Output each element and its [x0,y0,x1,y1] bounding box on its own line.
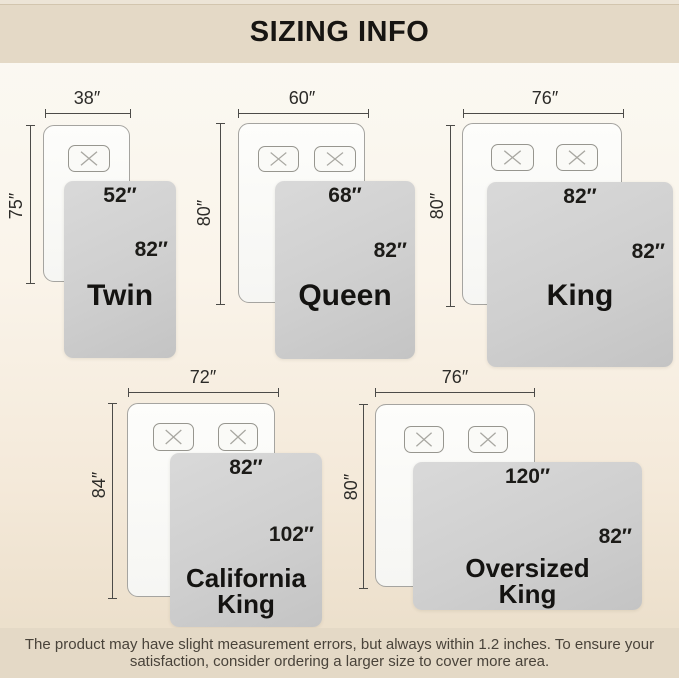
pillow-x-icon [469,427,507,452]
bed-length-dimension-line [216,123,225,305]
pillow-icon [68,145,110,172]
blanket-rect: 120″ 82″ Oversized King [413,462,642,610]
blanket-rect: 82″ 82″ King [487,182,673,367]
bed-width-label: 76″ [515,88,575,108]
pillow-x-icon [219,424,257,450]
pillow-x-icon [492,145,533,170]
sizing-info-infographic: SIZING INFO 38″ 75″ 52″ 82″ Twin 60″ 80″ [0,0,679,678]
size-name-label: California King [171,565,321,617]
pillow-x-icon [557,145,597,170]
pillow-icon [258,146,299,172]
bed-width-label: 76″ [425,367,485,387]
bed-length-dimension-line [446,125,455,307]
pillow-icon [491,144,534,171]
pillow-icon [314,146,356,172]
bed-length-dimension-line [26,125,35,284]
header-band: SIZING INFO [0,0,679,63]
bed-length-label: 80″ [341,457,361,517]
disclaimer-line-1: The product may have slight measurement … [0,636,679,653]
blanket-width-label: 68″ [275,184,415,208]
bed-width-label: 60″ [272,88,332,108]
blanket-width-label: 120″ [413,465,642,489]
pillow-icon [468,426,508,453]
bed-width-dimension-line [463,109,624,118]
size-name-label: Queen [275,279,415,313]
bed-length-label: 75″ [6,176,26,236]
pillow-x-icon [154,424,193,450]
size-name-label: Twin [64,279,176,313]
disclaimer-line-2: satisfaction, consider ordering a larger… [0,653,679,670]
pillow-icon [556,144,598,171]
blanket-rect: 68″ 82″ Queen [275,181,415,359]
bed-width-label: 38″ [57,88,117,108]
blanket-width-label: 52″ [64,184,176,208]
pillow-x-icon [405,427,443,452]
blanket-width-label: 82″ [487,185,673,209]
pillow-icon [218,423,258,451]
blanket-length-label: 82″ [374,239,407,263]
page-title: SIZING INFO [0,16,679,49]
pillow-icon [404,426,444,453]
bed-width-dimension-line [238,109,369,118]
bed-width-dimension-line [45,109,131,118]
bed-length-label: 80″ [427,176,447,236]
pillow-icon [153,423,194,451]
bed-length-label: 84″ [89,455,109,515]
blanket-rect: 52″ 82″ Twin [64,181,176,358]
pillow-x-icon [259,147,298,171]
footer-band: The product may have slight measurement … [0,628,679,678]
pillow-x-icon [315,147,355,171]
bed-length-dimension-line [108,403,117,599]
bed-width-dimension-line [375,388,535,397]
blanket-rect: 82″ 102″ California King [170,453,322,627]
disclaimer-text: The product may have slight measurement … [0,636,679,670]
blanket-length-label: 102″ [269,523,314,547]
blanket-width-label: 82″ [170,456,322,480]
pillow-x-icon [69,146,109,171]
blanket-length-label: 82″ [632,240,665,264]
bed-width-label: 72″ [173,367,233,387]
size-name-label: King [487,279,673,313]
size-name-label: Oversized King [458,555,598,607]
blanket-length-label: 82″ [135,238,168,262]
blanket-length-label: 82″ [599,525,632,549]
bed-width-dimension-line [128,388,279,397]
bed-length-label: 80″ [194,183,214,243]
